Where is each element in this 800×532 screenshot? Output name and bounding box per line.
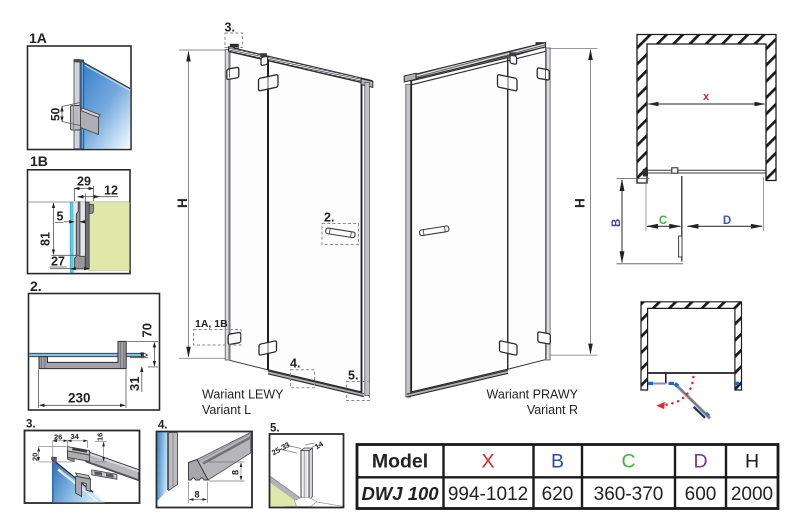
- svg-text:70: 70: [140, 323, 155, 337]
- svg-text:5: 5: [57, 210, 64, 224]
- svg-text:1A: 1A: [29, 30, 47, 46]
- svg-text:H: H: [745, 451, 759, 473]
- svg-text:Variant L: Variant L: [202, 403, 251, 417]
- svg-text:5.: 5.: [348, 369, 358, 383]
- svg-text:X: X: [481, 451, 494, 473]
- svg-text:2.: 2.: [324, 211, 334, 225]
- svg-text:994-1012: 994-1012: [448, 484, 528, 505]
- svg-text:31: 31: [127, 377, 142, 391]
- svg-text:12: 12: [104, 184, 118, 198]
- svg-text:16: 16: [96, 433, 105, 441]
- svg-text:3.: 3.: [26, 419, 36, 431]
- svg-text:H: H: [175, 198, 190, 208]
- svg-text:5.: 5.: [270, 423, 280, 435]
- svg-text:1A, 1B: 1A, 1B: [195, 318, 228, 330]
- svg-text:x: x: [703, 91, 710, 103]
- svg-text:20: 20: [31, 453, 40, 461]
- svg-text:4.: 4.: [158, 420, 168, 432]
- svg-text:8: 8: [195, 490, 200, 500]
- svg-text:27: 27: [51, 255, 65, 269]
- svg-text:26: 26: [54, 432, 62, 441]
- svg-text:620: 620: [542, 484, 574, 505]
- svg-text:4.: 4.: [290, 357, 300, 371]
- svg-text:H: H: [573, 198, 588, 208]
- svg-text:34: 34: [71, 432, 80, 441]
- svg-text:D: D: [693, 451, 707, 473]
- svg-text:DWJ 100: DWJ 100: [361, 483, 439, 504]
- svg-text:50: 50: [49, 107, 63, 121]
- svg-text:81: 81: [39, 232, 53, 246]
- svg-text:Wariant LEWY: Wariant LEWY: [202, 388, 284, 402]
- svg-text:2000: 2000: [731, 484, 773, 505]
- svg-text:600: 600: [685, 484, 717, 505]
- svg-text:2.: 2.: [30, 278, 42, 294]
- svg-text:B: B: [611, 219, 623, 227]
- svg-text:B: B: [551, 451, 564, 473]
- svg-text:360-370: 360-370: [594, 484, 664, 505]
- svg-text:230: 230: [68, 391, 91, 406]
- svg-text:Model: Model: [372, 451, 428, 473]
- svg-text:Variant R: Variant R: [527, 403, 578, 417]
- svg-text:Wariant PRAWY: Wariant PRAWY: [487, 388, 579, 402]
- svg-text:8: 8: [231, 470, 241, 475]
- svg-text:C: C: [621, 451, 635, 473]
- svg-text:D: D: [723, 215, 731, 227]
- svg-text:29: 29: [77, 175, 91, 189]
- svg-text:C: C: [659, 215, 667, 227]
- svg-text:1B: 1B: [30, 153, 48, 169]
- svg-text:3.: 3.: [225, 21, 235, 35]
